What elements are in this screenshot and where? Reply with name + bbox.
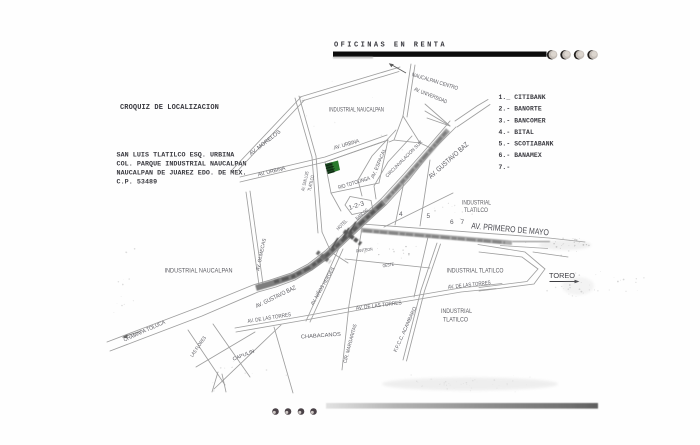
svg-text:4: 4: [399, 211, 403, 218]
svg-text:LAS FLORES: LAS FLORES: [189, 335, 208, 359]
svg-text:SAN LUIS TLATILCO ESQ. URBINA: SAN LUIS TLATILCO ESQ. URBINA: [117, 152, 236, 160]
svg-text:4.- BITAL: 4.- BITAL: [499, 129, 534, 136]
svg-text:RIO TOTOLINGA: RIO TOTOLINGA: [338, 176, 372, 191]
svg-text:COL. PARQUE INDUSTRIAL NAUCALP: COL. PARQUE INDUSTRIAL NAUCALPAN: [117, 161, 247, 169]
svg-text:INDUSTRIAL TLATILCO: INDUSTRIAL TLATILCO: [447, 269, 504, 275]
svg-text:AV. URBINA: AV. URBINA: [257, 166, 286, 179]
svg-text:6: 6: [450, 219, 454, 226]
svg-text:INDUSTRIAL: INDUSTRIAL: [462, 201, 492, 207]
svg-text:5.- SCOTIABANK: 5.- SCOTIABANK: [499, 140, 554, 147]
svg-text:AV. MORELOS: AV. MORELOS: [249, 129, 283, 157]
svg-text:AV. DE LAS TORRES: AV. DE LAS TORRES: [247, 312, 292, 325]
svg-text:7: 7: [461, 219, 465, 226]
svg-text:INDUSTRIAL NAUCALPAN: INDUSTRIAL NAUCALPAN: [165, 268, 233, 275]
svg-text:CROQUIZ DE LOCALIZACION: CROQUIZ DE LOCALIZACION: [120, 104, 219, 112]
svg-text:INDUSTRIAL: INDUSTRIAL: [441, 309, 473, 315]
svg-text:5: 5: [427, 213, 431, 220]
svg-text:AV. UNIVERSIDAD: AV. UNIVERSIDAD: [413, 87, 448, 106]
svg-text:TLATILCO: TLATILCO: [464, 208, 488, 214]
svg-text:2.- BANORTE: 2.- BANORTE: [499, 106, 542, 113]
svg-text:7.-: 7.-: [499, 164, 511, 171]
svg-text:C.P. 53489: C.P. 53489: [117, 179, 158, 187]
svg-text:3.- BANCOMER: 3.- BANCOMER: [499, 117, 546, 124]
svg-text:CHABACANOS: CHABACANOS: [301, 332, 342, 341]
svg-text:OFICINAS EN RENTA: OFICINAS EN RENTA: [334, 42, 447, 50]
svg-text:OESTE: OESTE: [382, 262, 394, 269]
svg-text:TLATILCO: TLATILCO: [443, 318, 468, 324]
svg-text:1._ CITIBANK: 1._ CITIBANK: [499, 94, 546, 101]
svg-text:AV. NIÑOS HEROES: AV. NIÑOS HEROES: [309, 265, 337, 306]
svg-text:6.- BANAMEX: 6.- BANAMEX: [499, 152, 542, 159]
svg-text:AV. DE LAS TORRES: AV. DE LAS TORRES: [448, 280, 492, 290]
svg-text:NAUCALPAN DE JUAREZ EDO. DE ME: NAUCALPAN DE JUAREZ EDO. DE MEX.: [117, 170, 247, 178]
